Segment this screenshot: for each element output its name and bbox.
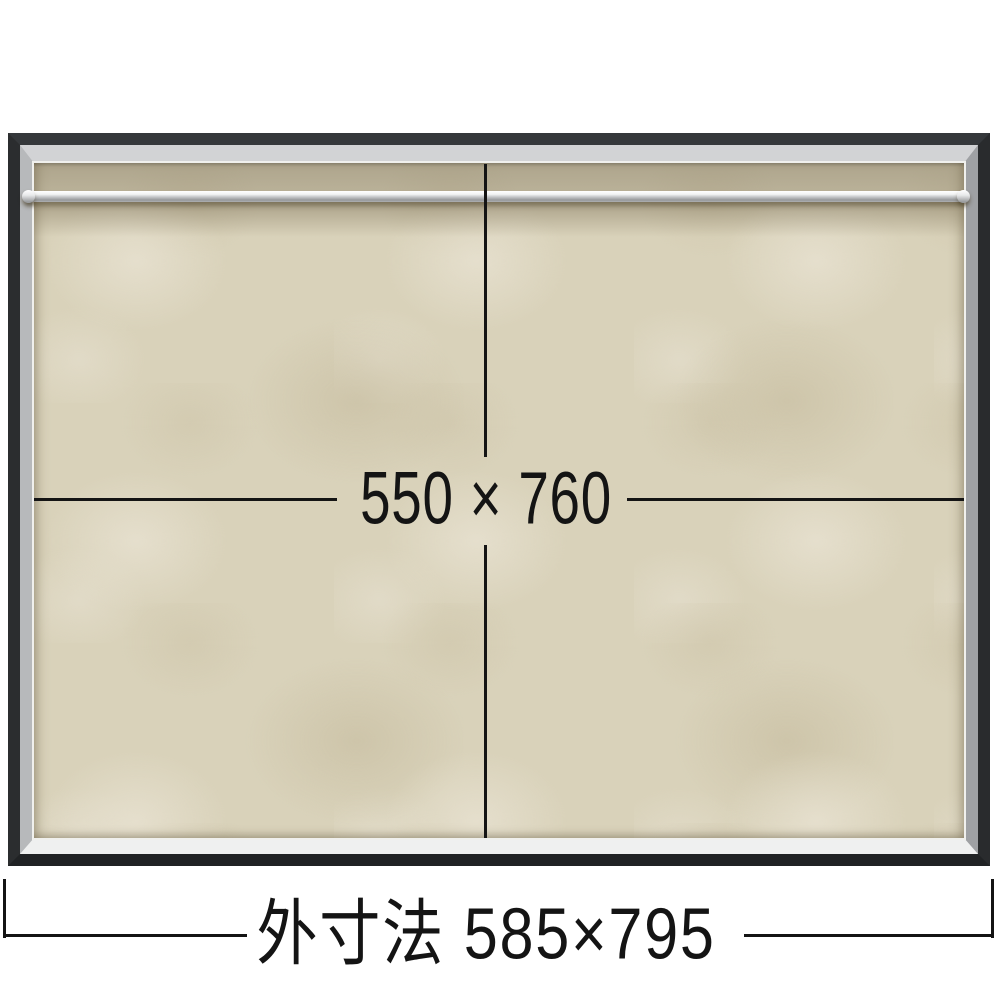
- outer-dimension-extension-tick-left: [3, 879, 6, 938]
- outer-dimension-extension-tick-right: [991, 879, 994, 938]
- outer-size-label: 外寸法 585×795: [256, 899, 715, 971]
- outer-width-dimension-line-left: [3, 934, 247, 937]
- inner-height-dimension-line-top: [484, 164, 487, 457]
- inner-width-dimension-line-right: [627, 498, 964, 501]
- hanging-rail: [24, 191, 968, 202]
- inner-height-dimension-line-bottom: [484, 545, 487, 838]
- outer-width-dimension-line-right: [744, 934, 994, 937]
- inner-width-dimension-line-left: [34, 498, 337, 501]
- inner-size-label: 550 × 760: [360, 462, 612, 536]
- product-dimension-diagram: 550 × 760 外寸法 585×795: [0, 0, 1000, 1000]
